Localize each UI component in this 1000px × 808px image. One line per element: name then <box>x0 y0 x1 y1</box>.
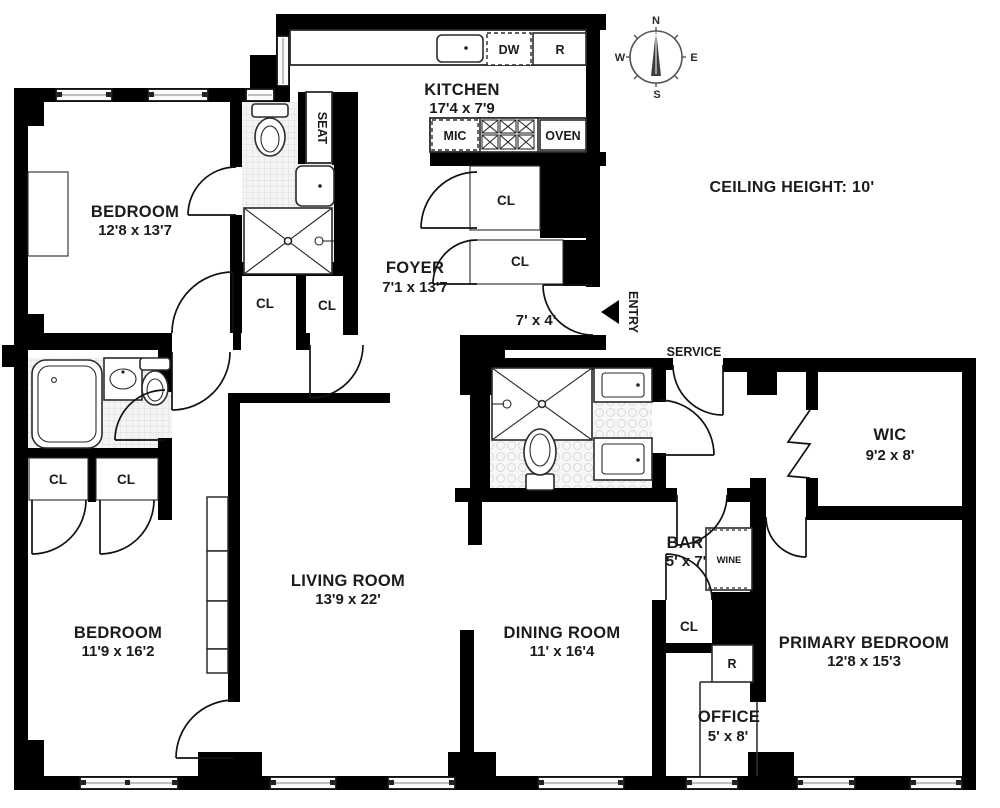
room-dims-wic: 9'2 x 8' <box>866 447 915 464</box>
closet-label: CL <box>680 619 698 634</box>
closet-label: CL <box>256 296 274 311</box>
room-label-kitchen: KITCHEN <box>424 81 499 99</box>
room-dims-kitchen: 17'4 x 7'9 <box>429 100 495 117</box>
room-dims-primary: 12'8 x 15'3 <box>827 653 901 670</box>
door-arc <box>310 345 363 398</box>
room-label-living: LIVING ROOM <box>291 572 405 590</box>
window-icon <box>80 777 178 789</box>
bathtub-icon <box>32 360 102 448</box>
floorplan-page: N E S W CEILING HEIGHT: 10' KITCHEN 17'4… <box>0 0 1000 808</box>
door-arc <box>673 365 723 415</box>
compass-w: W <box>615 52 626 64</box>
wine-label: WINE <box>717 555 742 566</box>
window-icon <box>56 89 112 101</box>
closet-label: CL <box>318 298 336 313</box>
door-arc <box>188 167 236 215</box>
room-label-foyer: FOYER <box>386 259 444 277</box>
compass-n: N <box>652 15 660 27</box>
vanity-sink-icon <box>594 368 652 402</box>
vanity-sink-icon <box>594 438 652 480</box>
sink-icon <box>296 166 334 206</box>
window-icon <box>910 777 962 789</box>
seat-label: SEAT <box>315 112 329 145</box>
room-dims-bar: 5' x 7' <box>666 553 707 570</box>
door-arc <box>421 172 477 228</box>
cooktop-icon <box>480 118 538 152</box>
door-arc <box>172 352 230 410</box>
room-label-office: OFFICE <box>698 708 760 726</box>
door-arc <box>659 400 714 455</box>
room-dims-office: 5' x 8' <box>708 728 749 745</box>
entry-label: ENTRY <box>626 291 640 334</box>
window-icon <box>246 89 274 101</box>
room-label-bedroom-left: BEDROOM <box>74 624 162 642</box>
door-arc <box>176 700 234 758</box>
room-dims-entry-hall: 7' x 4' <box>516 312 557 329</box>
r-small-label: R <box>727 657 736 671</box>
doors <box>32 167 810 758</box>
closet-label: CL <box>511 254 529 269</box>
room-label-wic: WIC <box>874 426 907 444</box>
microwave-label: MIC <box>444 129 467 143</box>
room-dims-living: 13'9 x 22' <box>315 591 381 608</box>
shower-icon <box>244 208 334 274</box>
window-icon <box>148 89 208 101</box>
room-label-dining: DINING ROOM <box>504 624 621 642</box>
door-arc <box>766 517 806 557</box>
oven-label: OVEN <box>545 129 580 143</box>
door-arc <box>100 500 154 554</box>
service-label: SERVICE <box>667 345 722 359</box>
toilet-icon <box>252 104 288 156</box>
kitchen-sink-icon <box>437 35 483 62</box>
compass-s: S <box>653 89 660 101</box>
bedroom-furniture <box>28 172 68 256</box>
entry-arrow-icon <box>601 300 619 324</box>
bifold-door <box>788 410 810 478</box>
closet-label: CL <box>49 472 67 487</box>
room-label-primary: PRIMARY BEDROOM <box>779 634 949 652</box>
toilet-icon <box>524 429 556 490</box>
room-label-bedroom-top: BEDROOM <box>91 203 179 221</box>
window-icon <box>270 777 336 789</box>
floorplan-drawing: N E S W CEILING HEIGHT: 10' KITCHEN 17'4… <box>0 0 1000 808</box>
compass-e: E <box>690 52 697 64</box>
toilet-icon <box>140 358 170 405</box>
dishwasher-label: DW <box>499 43 520 57</box>
window-icon <box>388 777 455 789</box>
door-arc <box>172 272 233 333</box>
ceiling-height-note: CEILING HEIGHT: 10' <box>709 179 874 196</box>
room-dims-bedroom-top: 12'8 x 13'7 <box>98 222 172 239</box>
room-dims-foyer: 7'1 x 13'7 <box>382 279 448 296</box>
window-icon <box>538 777 624 789</box>
room-dims-dining: 11' x 16'4 <box>530 643 595 660</box>
room-label-bar: BAR <box>667 534 704 552</box>
compass-icon: N E S W <box>615 15 698 101</box>
window-icon <box>797 777 855 789</box>
door-arc <box>32 500 86 554</box>
built-in-shelves <box>207 497 228 673</box>
room-dims-bedroom-left: 11'9 x 16'2 <box>81 643 154 660</box>
refrigerator-label: R <box>555 43 564 57</box>
sink-icon <box>104 358 142 400</box>
window-icon <box>686 777 738 789</box>
window-icon <box>277 36 289 86</box>
closet-label: CL <box>117 472 135 487</box>
closet-label: CL <box>497 193 515 208</box>
